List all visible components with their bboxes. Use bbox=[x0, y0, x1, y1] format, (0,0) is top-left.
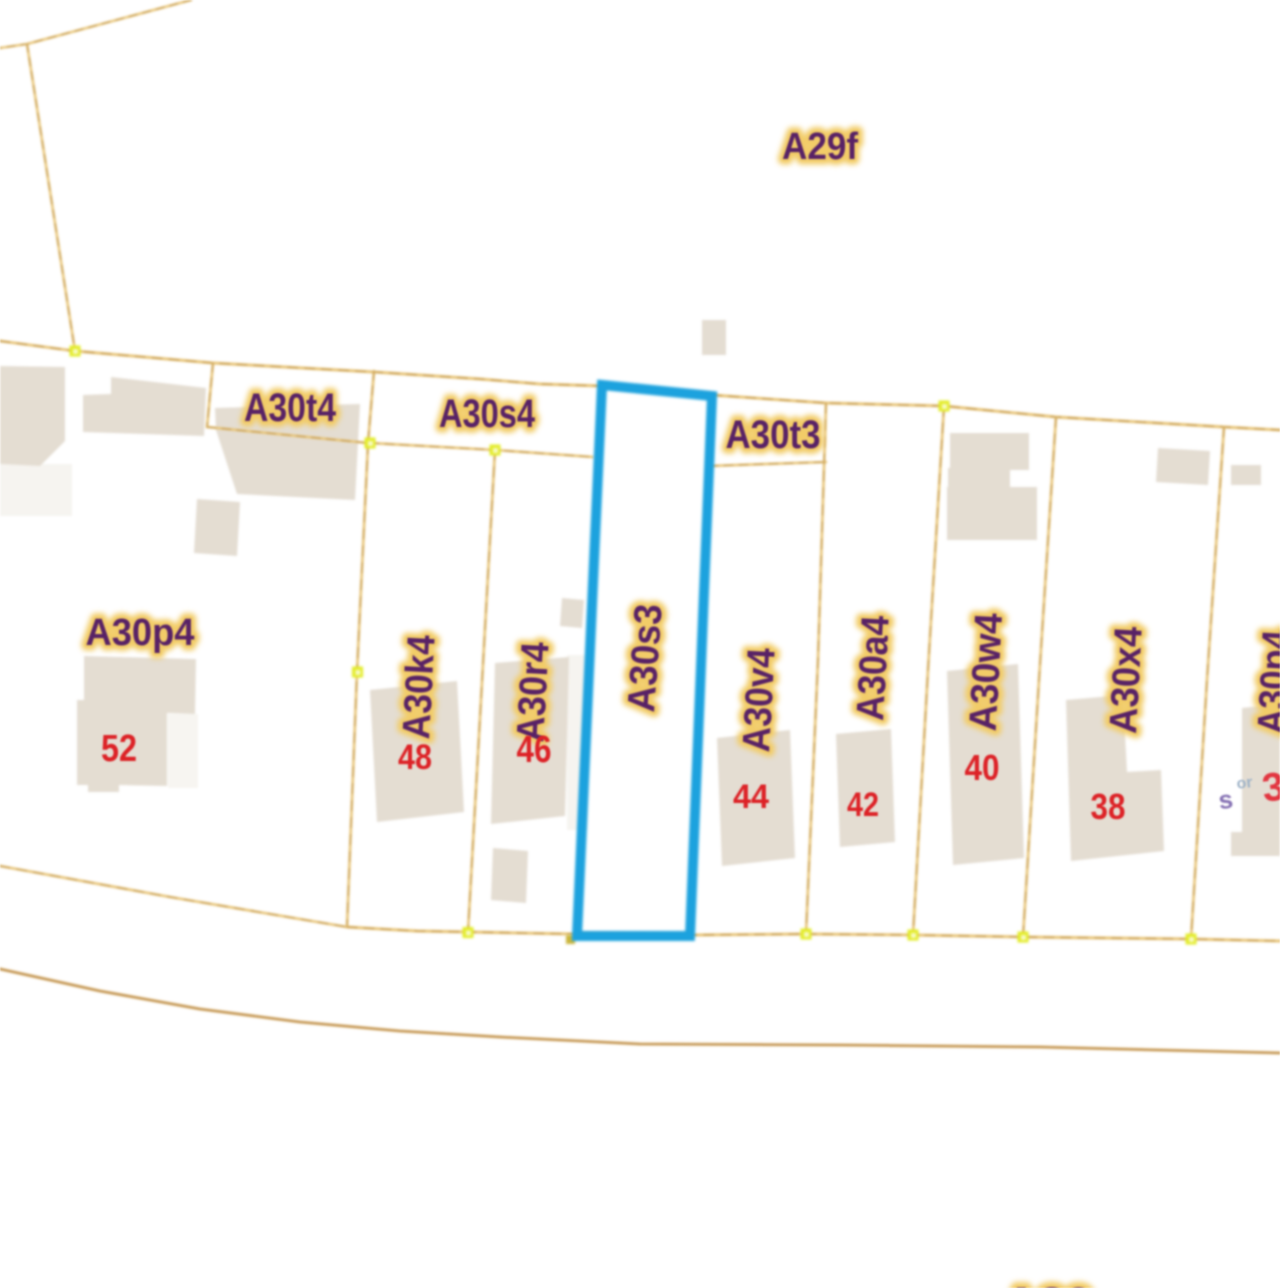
svg-text:A30: A30 bbox=[1004, 1280, 1092, 1288]
svg-text:38: 38 bbox=[1091, 786, 1126, 827]
svg-text:A30r4: A30r4 bbox=[509, 641, 557, 743]
svg-text:A30t4: A30t4 bbox=[244, 386, 337, 430]
svg-text:A30k4: A30k4 bbox=[395, 634, 443, 740]
svg-text:A30t3: A30t3 bbox=[726, 413, 821, 457]
svg-text:A30w4: A30w4 bbox=[962, 612, 1011, 732]
svg-text:A30x4: A30x4 bbox=[1102, 625, 1151, 734]
svg-text:48: 48 bbox=[398, 738, 432, 777]
svg-text:52: 52 bbox=[101, 728, 137, 770]
svg-text:40: 40 bbox=[965, 747, 1000, 788]
svg-text:A29f: A29f bbox=[782, 126, 858, 168]
svg-text:46: 46 bbox=[517, 729, 552, 771]
svg-text:A30p4: A30p4 bbox=[1250, 629, 1280, 735]
svg-text:42: 42 bbox=[847, 786, 879, 824]
svg-text:A30a4: A30a4 bbox=[849, 614, 897, 721]
svg-text:A30p4: A30p4 bbox=[86, 612, 195, 654]
svg-text:or: or bbox=[1236, 774, 1254, 793]
svg-text:44: 44 bbox=[733, 778, 769, 816]
svg-text:A30s3: A30s3 bbox=[620, 603, 670, 714]
svg-text:A30s4: A30s4 bbox=[439, 392, 536, 436]
svg-text:A30v4: A30v4 bbox=[735, 647, 783, 753]
